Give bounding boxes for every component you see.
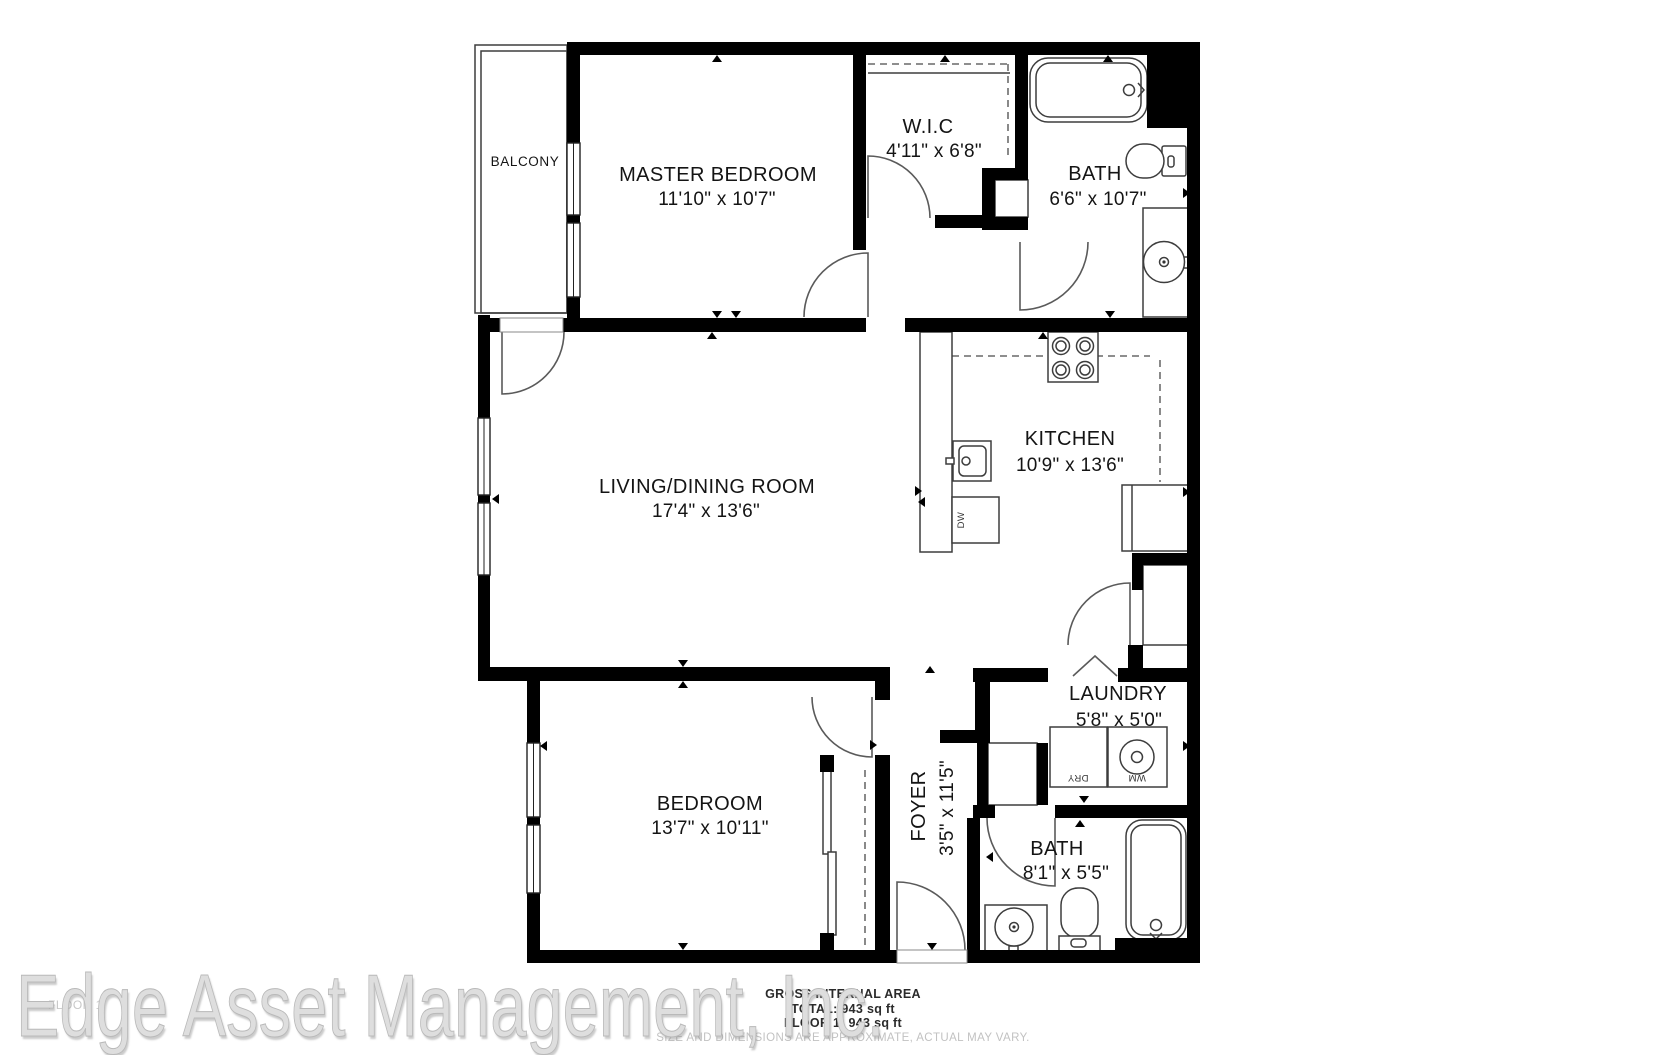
wic-dims: 4'11" x 6'8"	[886, 141, 982, 162]
kitchen-dims: 10'9" x 13'6"	[1016, 455, 1124, 476]
master-bedroom-label: MASTER BEDROOM	[619, 164, 817, 186]
svg-text:DW: DW	[956, 512, 967, 529]
bath-bottom-dims: 8'1" x 5'5"	[1023, 863, 1109, 884]
master-door-arc	[804, 253, 868, 317]
pantry-closet	[1143, 565, 1188, 645]
bath-top-dims: 6'6" x 10'7"	[1049, 189, 1146, 210]
stove-icon	[1048, 332, 1098, 382]
foyer-dims: 3'5" x 11'5"	[937, 760, 958, 856]
bifold-door	[1073, 656, 1117, 676]
kitchen-counter	[920, 332, 952, 552]
balcony-door-threshold	[500, 318, 563, 332]
bath-bottom-label: BATH	[1030, 838, 1083, 860]
bedroom-dims: 13'7" x 10'11"	[651, 818, 769, 839]
windows	[478, 143, 580, 893]
linen-niche	[995, 180, 1028, 217]
balcony-label: BALCONY	[491, 154, 560, 169]
entry-door-threshold	[897, 950, 967, 963]
wic-label: W.I.C	[903, 116, 954, 138]
wic-door-arc	[868, 156, 930, 218]
bedroom-door-arc	[812, 697, 872, 757]
laundry-dims: 5'8" x 5'0"	[1076, 710, 1162, 731]
washer-icon: WM	[1108, 727, 1167, 787]
floor-plan-canvas: DW DRY WM	[0, 0, 1680, 1049]
laundry-label: LAUNDRY	[1069, 683, 1167, 705]
floor-plan-page: { "rooms": { "balcony": {"name": "BALCON…	[0, 0, 1680, 1049]
sink-vanity-bottom-icon	[985, 905, 1047, 957]
bath-top-label: BATH	[1068, 163, 1121, 185]
dishwasher-icon: DW	[952, 497, 999, 543]
laundry-door-arc	[1068, 583, 1130, 645]
bathtub-top-icon	[1030, 58, 1147, 122]
kitchen-sink-icon	[946, 441, 991, 481]
toilet-bottom-icon	[1059, 888, 1100, 951]
living-dining-dims: 17'4" x 13'6"	[652, 501, 760, 522]
svg-text:DRY: DRY	[1067, 772, 1088, 783]
bedroom-label: BEDROOM	[657, 793, 763, 815]
utility-closet	[988, 743, 1037, 805]
entry-door-arc	[897, 882, 965, 950]
door-arcs	[502, 156, 1130, 950]
closet-sliding-doors	[823, 770, 836, 935]
fridge-icon	[1122, 485, 1188, 551]
watermark: Edge Asset Management, Inc.	[16, 962, 885, 1050]
foyer-label: FOYER	[908, 771, 930, 842]
dryer-icon: DRY	[1050, 727, 1107, 787]
living-dining-label: LIVING/DINING ROOM	[599, 476, 815, 498]
svg-text:WM: WM	[1128, 772, 1146, 783]
bathtub-bottom-icon	[1126, 820, 1186, 940]
master-bedroom-dims: 11'10" x 10'7"	[658, 189, 776, 210]
bath-top-door-arc	[1020, 242, 1088, 310]
kitchen-label: KITCHEN	[1025, 428, 1116, 450]
balcony-door-arc	[502, 332, 564, 394]
balcony-outline	[475, 45, 567, 313]
toilet-top-icon	[1126, 144, 1186, 178]
